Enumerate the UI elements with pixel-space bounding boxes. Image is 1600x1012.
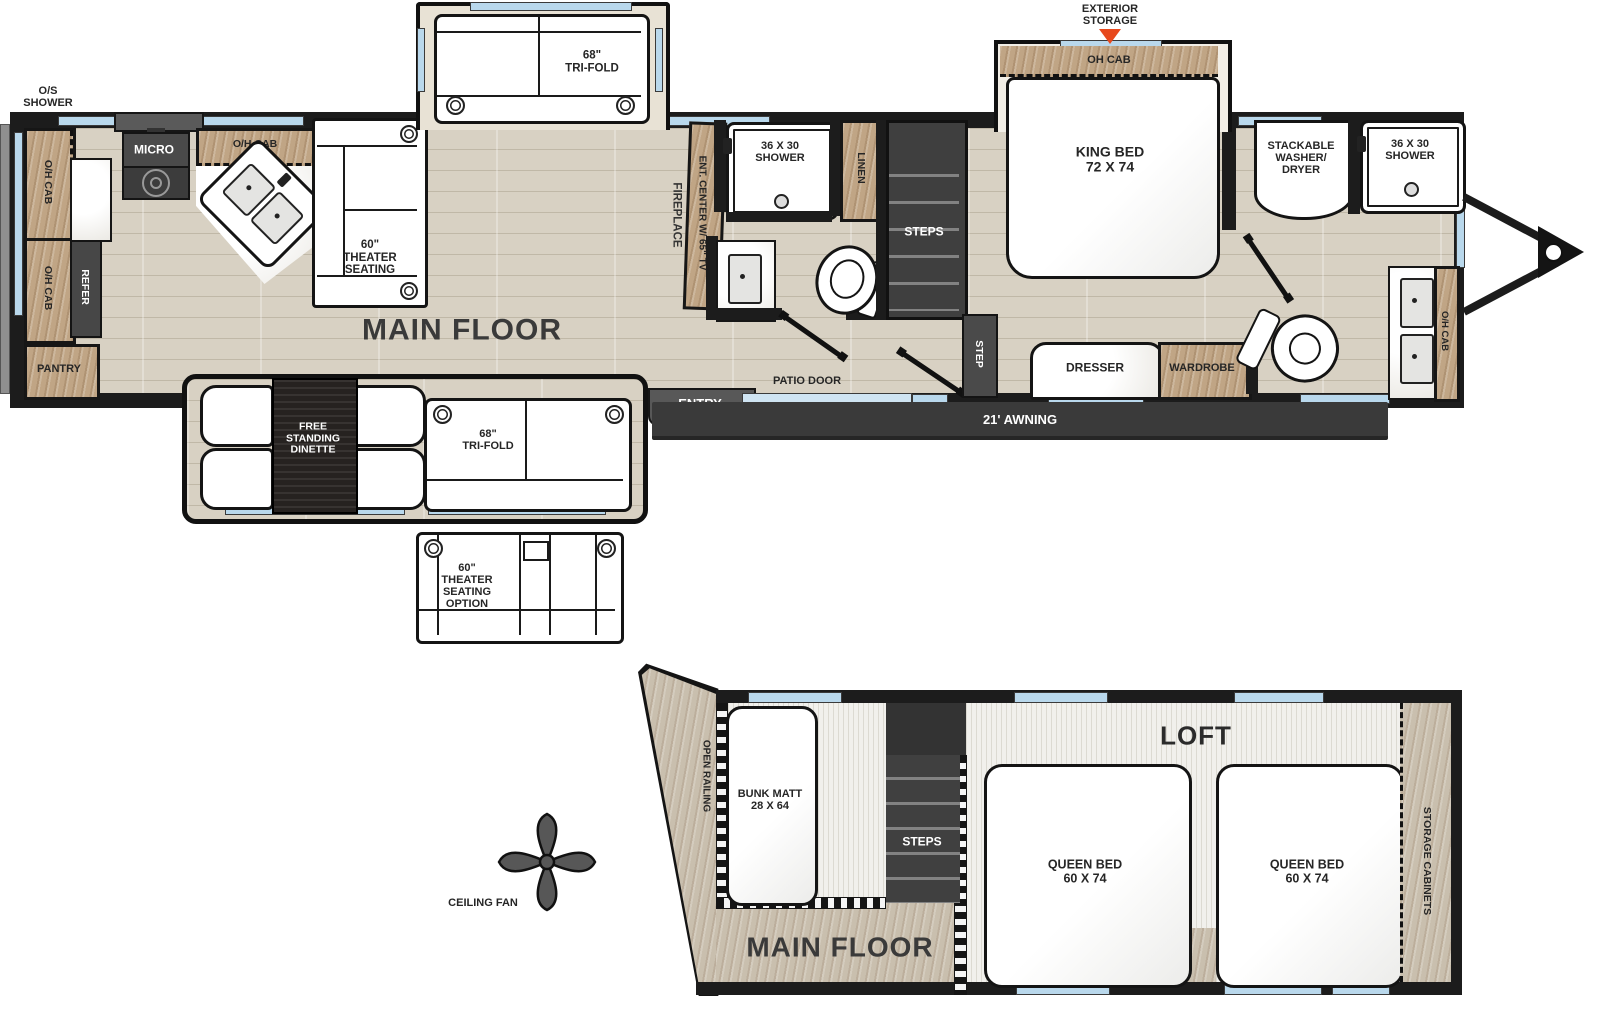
burner-icon xyxy=(150,177,162,189)
cup-holder xyxy=(605,405,624,424)
shower-head-icon xyxy=(1357,136,1366,152)
wardrobe-label: WARDROBE xyxy=(1169,362,1234,374)
loft-stairs-landing xyxy=(886,703,966,755)
dresser-label: DRESSER xyxy=(1066,361,1124,374)
cup-holder xyxy=(400,282,418,300)
dinette-chair xyxy=(352,448,426,510)
window xyxy=(1234,692,1324,703)
king-bed-label: KING BED 72 X 74 xyxy=(1076,145,1144,176)
cup-holder xyxy=(597,539,616,558)
dinette-chair xyxy=(200,448,274,510)
loft-stair-treads xyxy=(886,755,960,903)
bath-wall xyxy=(726,212,832,222)
window xyxy=(1456,208,1465,268)
bath-wall xyxy=(706,308,782,320)
shower-mid-label: 36 X 30 SHOWER xyxy=(755,140,805,164)
sofa-line xyxy=(525,401,527,479)
faucet-icon xyxy=(276,172,292,188)
theater-seating xyxy=(312,118,428,308)
loft-main-floor-label: MAIN FLOOR xyxy=(746,933,933,964)
vanity-sink xyxy=(1400,278,1434,328)
dinette-label: FREE STANDING DINETTE xyxy=(286,422,340,457)
window xyxy=(14,132,23,316)
loft-cutaway-floor xyxy=(641,665,719,993)
os-shower-label: O/S SHOWER xyxy=(23,85,73,109)
window xyxy=(655,28,663,92)
console-tray xyxy=(523,541,549,561)
open-railing-label: OPEN RAILING xyxy=(701,740,712,812)
theater-option-label: 60" THEATER SEATING OPTION xyxy=(441,562,492,610)
oh-cab-label: O/H CAB xyxy=(41,160,53,204)
dinette-chair xyxy=(200,385,274,447)
hitch-coupler-ball xyxy=(1544,243,1563,262)
tri-fold-bottom-label: 68" TRI-FOLD xyxy=(462,428,513,452)
shower-front xyxy=(1360,120,1466,214)
steps-label: STEPS xyxy=(904,225,943,238)
cup-holder xyxy=(616,96,635,115)
ceiling-fan-label: CEILING FAN xyxy=(448,897,518,909)
awning-label: 21' AWNING xyxy=(983,413,1057,427)
step-label: STEP xyxy=(972,340,984,367)
storage-cabinets-label: STORAGE CABINETS xyxy=(1420,807,1432,915)
window xyxy=(1014,692,1108,703)
sofa-line xyxy=(538,17,540,95)
queen-bed-left-label: QUEEN BED 60 X 74 xyxy=(1048,858,1122,886)
bath-wall xyxy=(714,120,726,212)
king-bed xyxy=(1006,77,1220,279)
sofa-line xyxy=(437,95,641,97)
vanity-sink xyxy=(728,254,762,304)
cup-holder xyxy=(433,405,452,424)
vanity-sink xyxy=(1400,334,1434,384)
window xyxy=(470,2,632,11)
shower-drain xyxy=(1404,182,1419,197)
loft-steps-label: STEPS xyxy=(902,835,941,848)
tri-fold-top-label: 68" TRI-FOLD xyxy=(565,49,619,74)
sink-drain xyxy=(1412,298,1417,303)
exterior-storage-label: EXTERIOR STORAGE xyxy=(1082,3,1138,27)
micro-label: MICRO xyxy=(134,143,174,156)
shower-head-icon xyxy=(723,138,732,154)
cup-holder xyxy=(424,539,443,558)
fireplace-label: FIREPLACE xyxy=(670,182,683,247)
bath-wall xyxy=(1348,118,1360,214)
window xyxy=(417,28,425,92)
window xyxy=(748,692,842,703)
sofa-line xyxy=(427,479,623,481)
shower-drain xyxy=(774,194,789,209)
sink-drain xyxy=(740,274,745,279)
oh-cab-label: O/H CAB xyxy=(1439,311,1449,351)
loft-label: LOFT xyxy=(1160,722,1232,751)
theater-seating-label: 60" THEATER SEATING xyxy=(343,239,396,277)
patio-door-label: PATIO DOOR xyxy=(773,375,841,387)
kitchen-counter-left xyxy=(70,158,112,242)
partition-wall xyxy=(1222,120,1236,230)
window xyxy=(58,116,116,126)
queen-bed-right-label: QUEEN BED 60 X 74 xyxy=(1270,858,1344,886)
washer-dryer-label: STACKABLE WASHER/ DRYER xyxy=(1267,140,1334,176)
rv-floorplan: O/S SHOWER O/H CAB O/H CAB REFER PANTRY … xyxy=(0,0,1600,1012)
sofa-line xyxy=(343,209,417,211)
shower-front-label: 36 X 30 SHOWER xyxy=(1385,138,1435,162)
linen-label: LINEN xyxy=(854,152,866,184)
oh-cab-label: O/H CAB xyxy=(41,266,53,310)
refer-label: REFER xyxy=(78,269,90,305)
sofa-line xyxy=(317,145,417,147)
dinette-chair xyxy=(352,385,426,447)
tri-fold-sofa-bottom xyxy=(424,398,632,512)
pantry-label: PANTRY xyxy=(37,363,81,375)
oh-cab-bed-label: OH CAB xyxy=(1087,54,1130,66)
rear-bumper xyxy=(0,124,10,394)
cup-holder xyxy=(446,96,465,115)
main-floor-label: MAIN FLOOR xyxy=(362,314,562,347)
window xyxy=(202,116,304,126)
bunk-matt-label: BUNK MATT 28 X 64 xyxy=(738,788,803,812)
sink-drain xyxy=(1412,354,1417,359)
